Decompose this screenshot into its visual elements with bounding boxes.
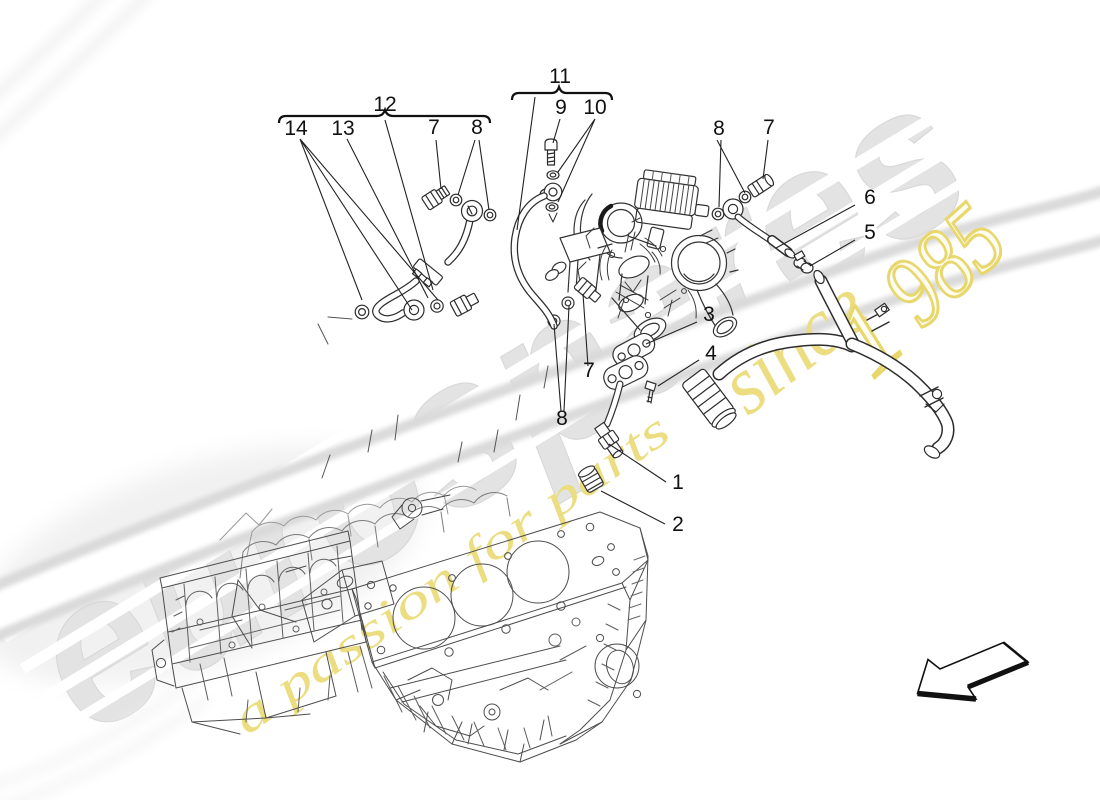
svg-text:1: 1 <box>672 471 684 494</box>
svg-text:13: 13 <box>331 117 354 140</box>
svg-text:11: 11 <box>549 65 571 88</box>
svg-text:6: 6 <box>864 186 876 209</box>
svg-text:14: 14 <box>284 117 308 140</box>
svg-text:7: 7 <box>583 359 595 382</box>
svg-text:8: 8 <box>471 116 483 139</box>
svg-text:9: 9 <box>555 96 567 119</box>
svg-text:3: 3 <box>703 303 715 326</box>
svg-text:7: 7 <box>428 116 440 139</box>
svg-text:8: 8 <box>713 117 725 140</box>
svg-text:2: 2 <box>672 513 684 536</box>
svg-text:10: 10 <box>583 96 606 119</box>
svg-text:8: 8 <box>556 407 568 430</box>
svg-text:5: 5 <box>864 221 876 244</box>
svg-text:7: 7 <box>763 116 775 139</box>
svg-text:4: 4 <box>705 342 717 365</box>
